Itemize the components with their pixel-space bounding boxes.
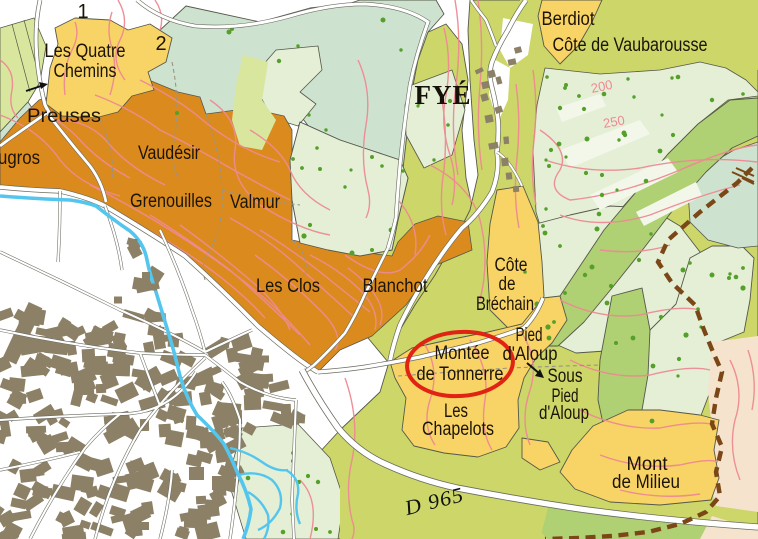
svg-text:Grenouilles: Grenouilles	[130, 191, 212, 212]
svg-text:d'Aloup: d'Aloup	[503, 344, 558, 365]
svg-text:Chapelots: Chapelots	[422, 419, 494, 440]
svg-text:Pied: Pied	[516, 325, 543, 346]
svg-text:de: de	[499, 274, 516, 295]
svg-text:Valmur: Valmur	[230, 192, 281, 213]
svg-text:d'Aloup: d'Aloup	[539, 403, 589, 424]
svg-text:Chemins: Chemins	[54, 61, 117, 82]
svg-text:de Milieu: de Milieu	[612, 472, 680, 493]
svg-text:Berdiot: Berdiot	[542, 9, 596, 30]
svg-text:Bréchain: Bréchain	[476, 294, 534, 315]
svg-text:Vaudésir: Vaudésir	[138, 143, 201, 164]
svg-text:Montée: Montée	[435, 343, 490, 364]
svg-text:2: 2	[155, 33, 166, 55]
svg-text:Blanchot: Blanchot	[363, 276, 429, 297]
svg-text:Sous: Sous	[548, 366, 583, 387]
svg-text:Les Quatre: Les Quatre	[45, 41, 126, 62]
svg-text:Côte: Côte	[495, 255, 528, 276]
svg-text:Preuses: Preuses	[27, 106, 101, 127]
svg-text:de Tonnerre: de Tonnerre	[417, 364, 504, 385]
svg-text:Les Clos: Les Clos	[256, 276, 320, 297]
svg-text:FYÉ: FYÉ	[415, 80, 472, 110]
svg-text:ugros: ugros	[0, 148, 40, 169]
svg-text:Côte de Vaubarousse: Côte de Vaubarousse	[553, 35, 708, 56]
svg-text:1: 1	[77, 1, 88, 23]
